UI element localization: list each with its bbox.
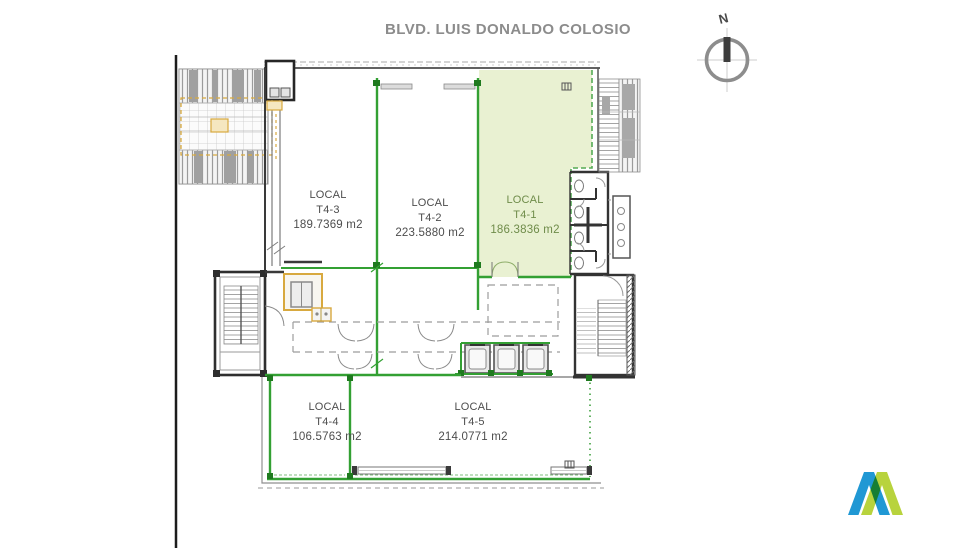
lobby bbox=[488, 285, 558, 336]
local-t4-1-label: LOCAL T4-1 186.3836 m2 bbox=[465, 193, 585, 238]
service-shaft bbox=[265, 61, 294, 272]
local-unit: T4-5 bbox=[413, 415, 533, 430]
lavatory-counter bbox=[608, 196, 630, 258]
local-name: LOCAL bbox=[413, 400, 533, 415]
compass-north-label: N bbox=[717, 10, 730, 27]
local-name: LOCAL bbox=[465, 193, 585, 208]
local-area: 106.5763 m2 bbox=[267, 430, 387, 445]
local-unit: T4-4 bbox=[267, 415, 387, 430]
parking-deck-left bbox=[179, 69, 272, 184]
stairwell-right bbox=[573, 275, 635, 377]
street-title: BLVD. LUIS DONALDO COLOSIO bbox=[358, 21, 658, 38]
parking-strip-right bbox=[599, 79, 640, 172]
local-unit: T4-1 bbox=[465, 208, 585, 223]
elevator-bank bbox=[455, 343, 553, 376]
local-name: LOCAL bbox=[267, 400, 387, 415]
stairwell-left bbox=[213, 270, 267, 377]
local-t4-5-label: LOCAL T4-5 214.0771 m2 bbox=[413, 400, 533, 445]
floor-plan: N bbox=[0, 0, 957, 558]
local-area: 214.0771 m2 bbox=[413, 430, 533, 445]
compass: N bbox=[697, 10, 757, 92]
local-area: 186.3836 m2 bbox=[465, 223, 585, 238]
local-t4-4-label: LOCAL T4-4 106.5763 m2 bbox=[267, 400, 387, 445]
local-t4-1-area bbox=[479, 70, 592, 277]
brand-logo-m bbox=[848, 472, 903, 515]
elevator-room bbox=[284, 274, 331, 321]
